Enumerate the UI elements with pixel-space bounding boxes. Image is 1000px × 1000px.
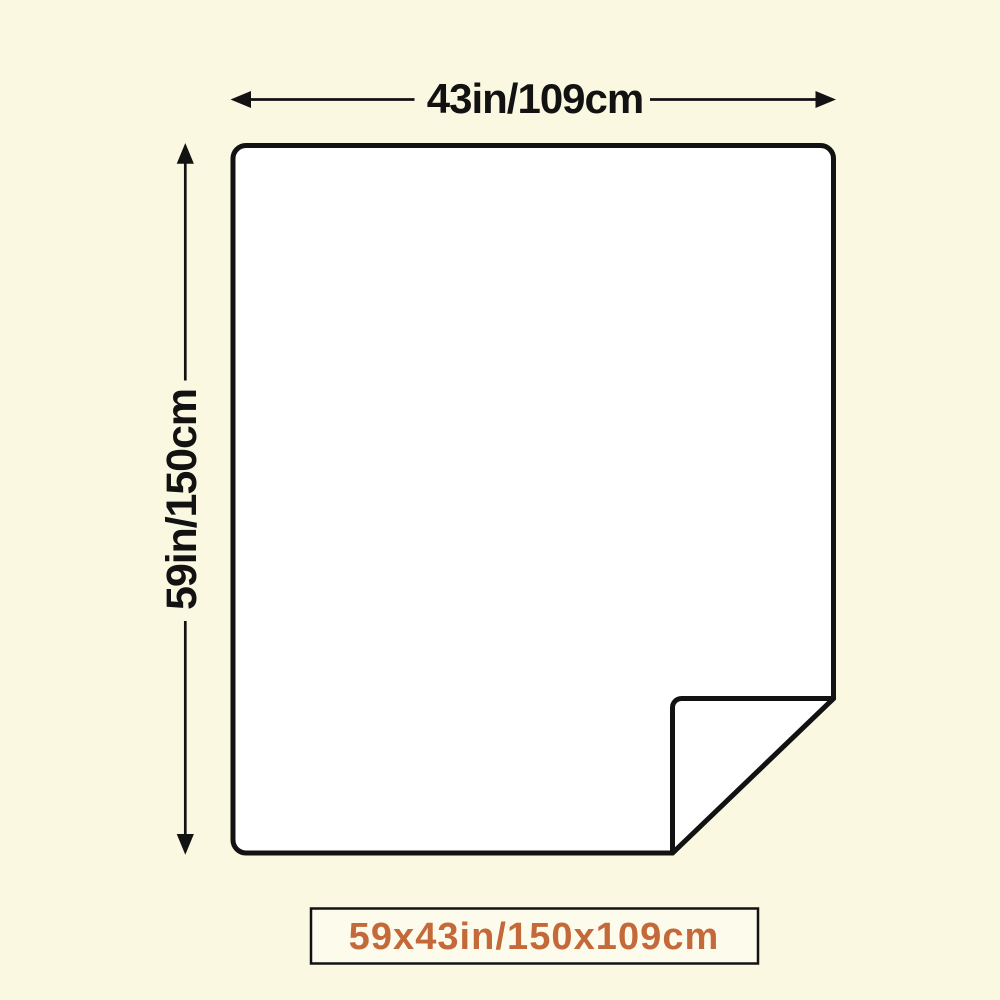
- svg-text:43in/109cm: 43in/109cm: [427, 75, 644, 122]
- svg-text:59in/150cm: 59in/150cm: [158, 389, 206, 610]
- svg-text:59x43in/150x109cm: 59x43in/150x109cm: [349, 916, 720, 958]
